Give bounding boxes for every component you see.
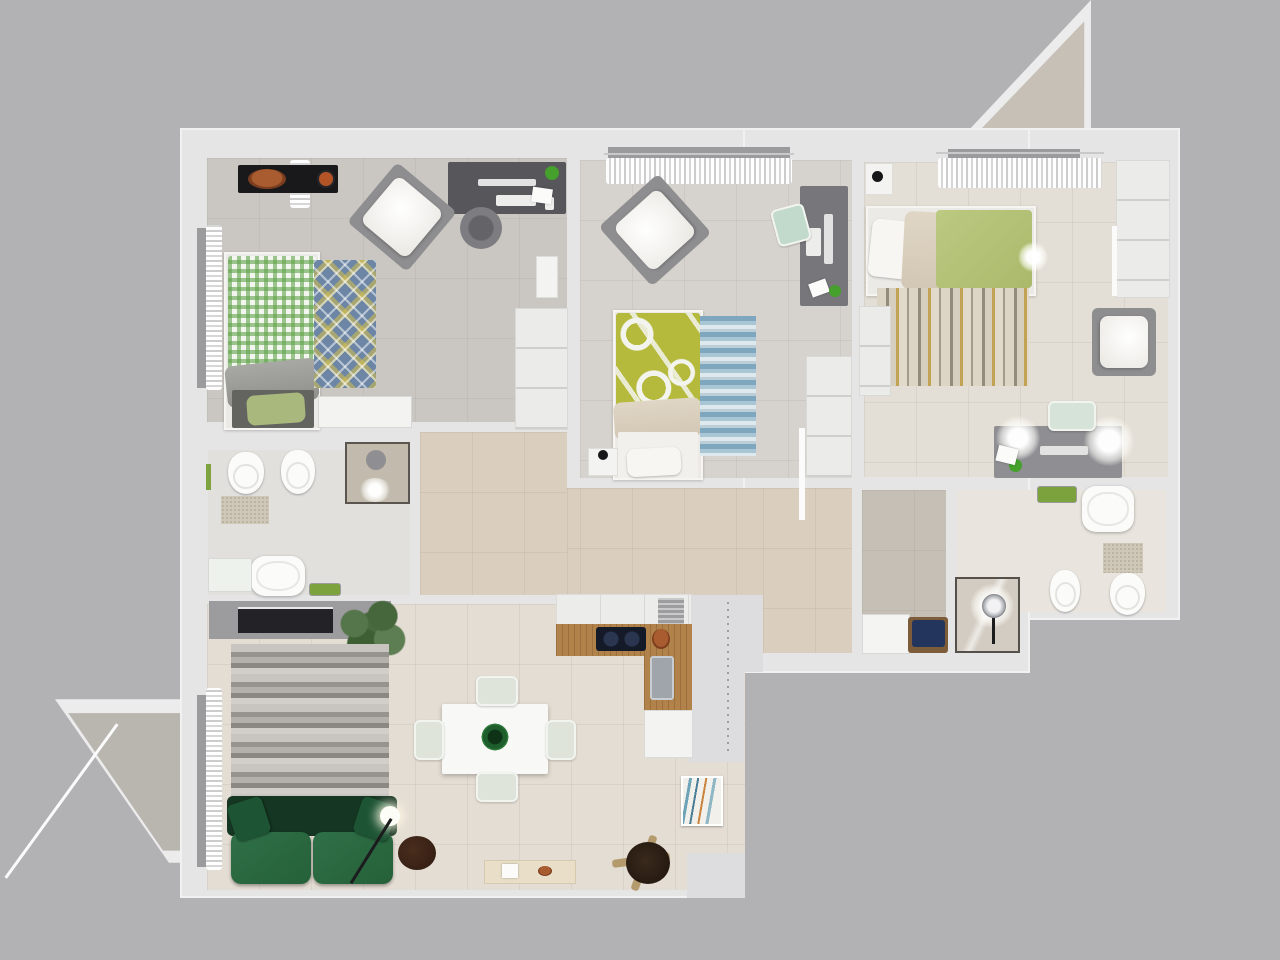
pillow-bedroom1 <box>246 392 306 426</box>
kitchen-decor-flowers <box>652 629 670 649</box>
bath-mat-bathroom1 <box>221 496 269 524</box>
dining-chair-bottom <box>476 772 518 802</box>
curtain-rail-bedroom2 <box>604 153 794 155</box>
wall-block-kitchen <box>688 595 744 762</box>
monitor-bedroom2 <box>824 214 833 264</box>
curtain-living <box>206 688 222 870</box>
cabinet-bathroom1 <box>208 558 252 592</box>
monitor-bedroom3 <box>1040 446 1088 455</box>
paper-bedroom1 <box>531 187 553 205</box>
wall-block-hall <box>744 595 763 672</box>
shelf-rail-bedroom2 <box>799 428 805 520</box>
floor-hall-d <box>567 488 580 595</box>
towel-rack-bathroom1 <box>310 584 340 595</box>
curtain-bedroom1 <box>206 225 222 390</box>
wall-deco-dots <box>727 602 729 752</box>
duvet-bedroom2 <box>616 313 700 409</box>
dresser-bedroom3 <box>859 306 891 396</box>
toilet-bathroom2 <box>1110 573 1145 615</box>
bathtub-bathroom2 <box>1082 486 1134 532</box>
balcony-left-railing <box>4 723 118 878</box>
desk-chair-bedroom3 <box>1048 401 1096 431</box>
plant-pot-bedroom1 <box>545 166 559 180</box>
floor-hall-b <box>580 488 763 595</box>
rug-living <box>231 644 389 802</box>
floor-hall-a <box>420 432 567 595</box>
tall-cabinet-kitchen <box>644 710 693 758</box>
duvet-bedroom3 <box>936 210 1032 288</box>
storage-basket <box>248 169 286 189</box>
rug-bedroom3 <box>877 288 1029 386</box>
shower-head-bathroom1 <box>366 450 386 470</box>
kitchen-sink <box>650 656 674 700</box>
bathtub-bathroom1 <box>251 556 305 596</box>
dining-chair-right <box>546 720 576 760</box>
fallen-chair-seat <box>626 842 670 884</box>
desk-chair-bedroom1 <box>460 207 502 249</box>
dining-chair-top <box>476 676 518 706</box>
window-living <box>197 695 206 867</box>
lamp-bedroom3 <box>872 171 883 182</box>
armchair-bedroom3 <box>1092 308 1156 376</box>
floor-hall-c <box>763 488 852 653</box>
pillow-bedroom2 <box>626 447 681 478</box>
mirror-shower-room <box>982 594 1006 618</box>
keyboard-bedroom1 <box>496 195 536 206</box>
lamp-bedroom2 <box>598 450 608 460</box>
console-decor-2 <box>538 866 552 876</box>
console-decor-1 <box>502 864 518 878</box>
rug-bedroom1 <box>314 260 376 388</box>
curtain-bedroom3 <box>938 158 1102 188</box>
wall-shelf-bedroom1 <box>536 256 558 298</box>
toilet-bathroom1 <box>228 452 264 494</box>
washing-machine <box>862 614 910 654</box>
mirror-stand <box>992 618 995 644</box>
bidet-bathroom1 <box>281 450 315 494</box>
artwork-leaning <box>681 776 723 826</box>
apple-bedroom2 <box>829 285 841 297</box>
tv <box>238 607 333 633</box>
centerpiece-bowl <box>477 719 513 755</box>
cooktop <box>596 627 646 651</box>
window-bedroom1 <box>197 228 206 388</box>
curtain-rail-bedroom3 <box>936 152 1104 154</box>
wardrobe-handle-bedroom3 <box>1112 226 1117 296</box>
towel-rack-bathroom2 <box>1038 487 1076 502</box>
console-table-living <box>484 860 576 884</box>
window-bathroom1 <box>206 464 211 490</box>
wall-clock <box>317 170 335 188</box>
floor-lamp-shade <box>398 836 436 870</box>
duvet-bedroom1 <box>228 256 316 372</box>
shower-glow-bathroom1 <box>358 478 392 502</box>
wardrobe-bedroom2 <box>806 356 852 478</box>
floorplan-canvas <box>0 0 1280 960</box>
wardrobe-bedroom3 <box>1116 160 1170 298</box>
dining-chair-left <box>414 720 444 760</box>
bed-light-bedroom3 <box>1018 242 1048 272</box>
bidet-bathroom2 <box>1050 570 1080 612</box>
curtain-bedroom2 <box>606 158 792 184</box>
bath-mat-bathroom2 <box>1103 543 1143 573</box>
wardrobe-bedroom1 <box>515 308 568 430</box>
wall-notch-living <box>687 853 745 898</box>
rug-bedroom2 <box>700 316 756 456</box>
door-bedroom1 <box>318 396 412 428</box>
monitor-bedroom1 <box>478 179 536 186</box>
towels-navy <box>912 620 945 647</box>
